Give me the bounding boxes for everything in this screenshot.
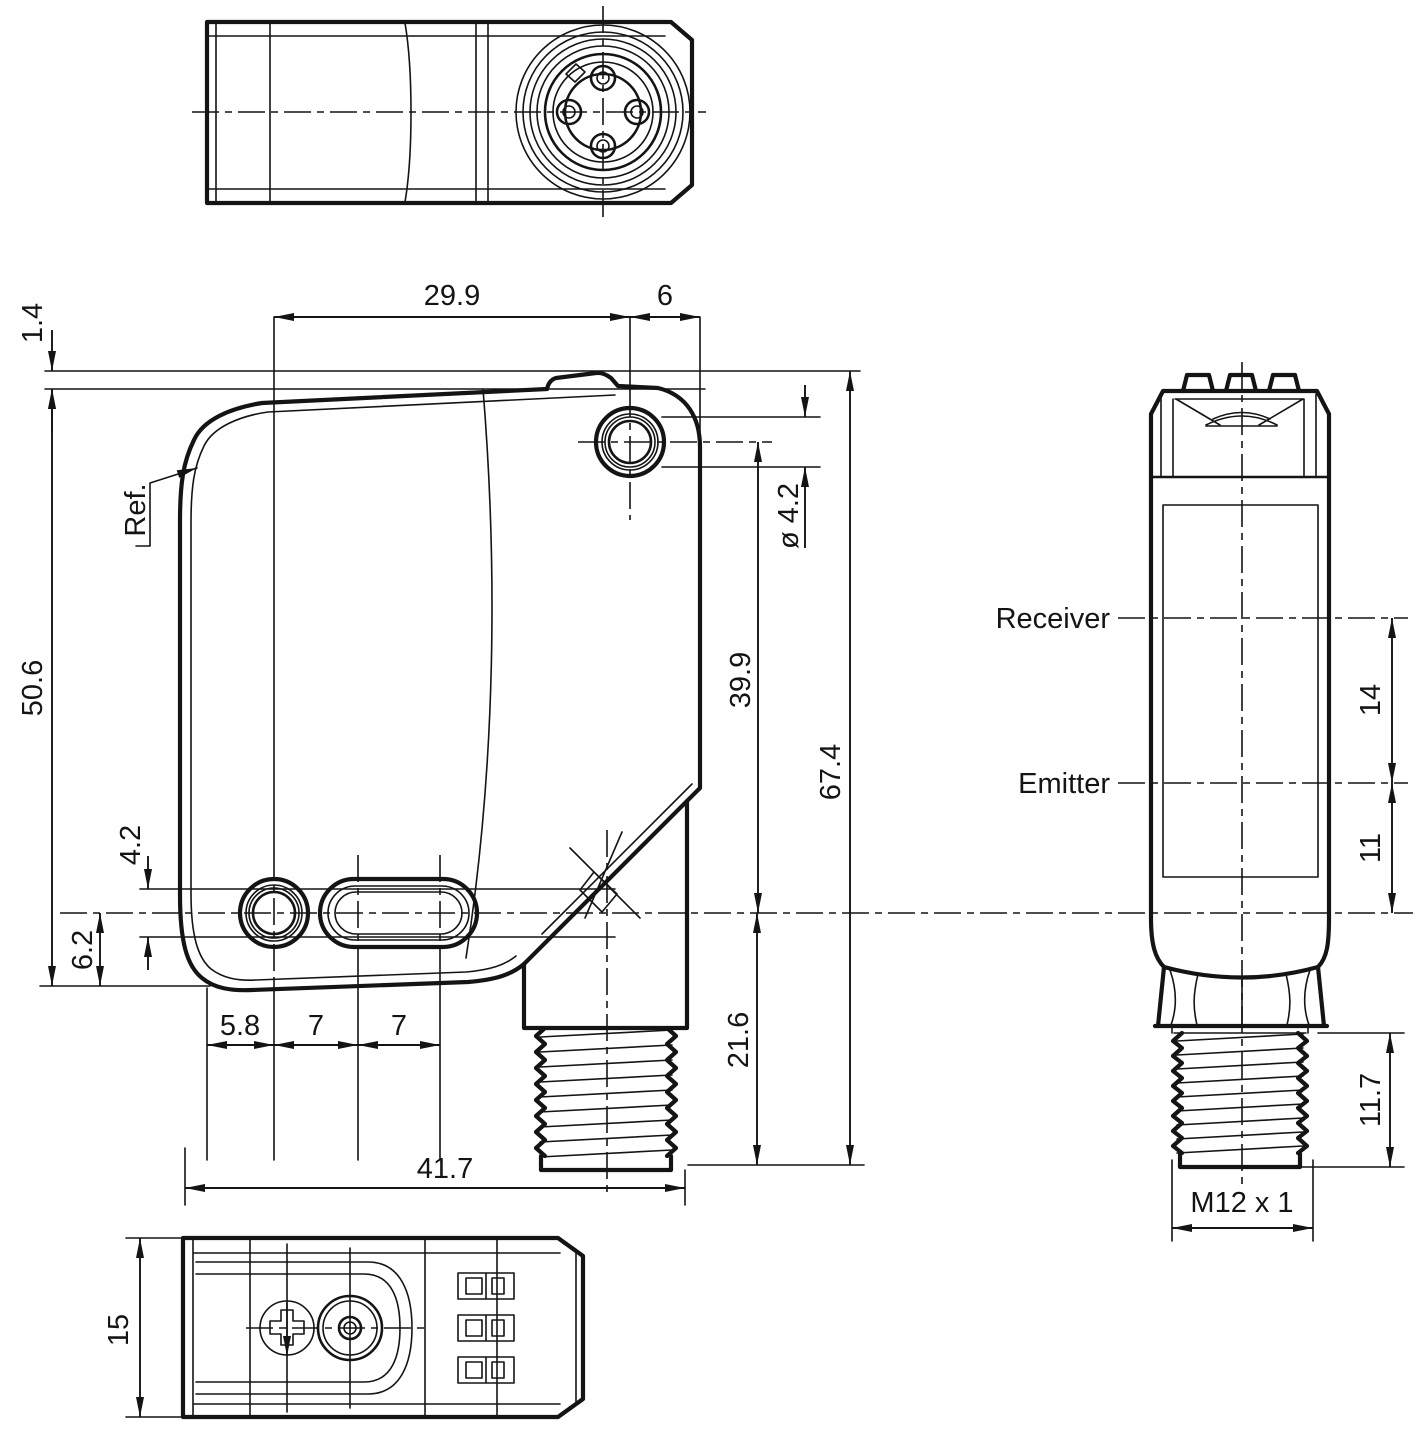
connector-stem	[524, 801, 687, 1028]
bottom-view: 15	[103, 1238, 583, 1417]
connector-pin-slots	[458, 1273, 514, 1383]
front-view	[1118, 362, 1408, 1190]
emitter-label: Emitter	[1018, 768, 1110, 800]
main-view	[180, 373, 772, 1195]
front-thread-right	[1298, 1033, 1307, 1153]
receiver-label: Receiver	[996, 603, 1111, 635]
dim-15-extension-lines	[126, 1238, 186, 1417]
sensor-dimension-drawing: 29.9 6 1.4 Ref. 50.6 4.2 6.2 5.8 7 7 41.…	[0, 0, 1417, 1441]
front-window-edge	[466, 389, 492, 958]
dim-label-15: 15	[103, 1314, 135, 1346]
main-view-dimensions: 29.9 6 1.4 Ref. 50.6 4.2 6.2 5.8 7 7 41.…	[17, 280, 864, 1205]
dim-label-6: 6	[657, 280, 673, 312]
dim-label-67-4: 67.4	[815, 744, 847, 800]
dim-label-7b: 7	[391, 1010, 407, 1042]
dim-label-dia-4-2: ø 4.2	[773, 483, 805, 549]
extension-lines	[40, 317, 864, 1205]
dim-label-41-7: 41.7	[417, 1153, 473, 1185]
dim-label-29-9: 29.9	[424, 280, 480, 312]
drawing-page: 29.9 6 1.4 Ref. 50.6 4.2 6.2 5.8 7 7 41.…	[0, 0, 1417, 1441]
thread-profile-left	[536, 1028, 545, 1156]
dim-label-21-6: 21.6	[723, 1012, 755, 1068]
cap-detail-lines	[1161, 394, 1316, 477]
dim-label-5-8: 5.8	[220, 1010, 260, 1042]
dim-label-14: 14	[1355, 684, 1387, 716]
dim-label-m12: M12 x 1	[1190, 1187, 1293, 1219]
dim-label-39-9: 39.9	[725, 652, 757, 708]
thread-end-cap	[541, 1156, 671, 1170]
dim-label-50-6: 50.6	[17, 660, 49, 716]
ref-label: Ref.	[120, 483, 152, 536]
thread-crest-lines	[540, 1030, 672, 1157]
front-top-tabs	[1183, 375, 1299, 391]
dim-label-4-2: 4.2	[115, 825, 147, 865]
front-thread-crests	[1177, 1034, 1303, 1153]
dim-label-11: 11	[1355, 833, 1387, 863]
top-view	[192, 6, 706, 220]
dim-label-11-7: 11.7	[1355, 1073, 1387, 1127]
dim-label-6-2: 6.2	[67, 930, 99, 970]
dim-label-1-4: 1.4	[17, 303, 49, 343]
front-window	[1163, 505, 1318, 877]
thread-profile-right	[667, 1028, 676, 1156]
front-body-outline	[1151, 391, 1329, 978]
front-thread-left	[1173, 1033, 1182, 1153]
front-thread-end-cap	[1180, 1154, 1300, 1167]
dim-label-7a: 7	[308, 1010, 324, 1042]
front-view-dimensions: Receiver Emitter 14 11 11.7 M12 x 1	[996, 603, 1404, 1241]
